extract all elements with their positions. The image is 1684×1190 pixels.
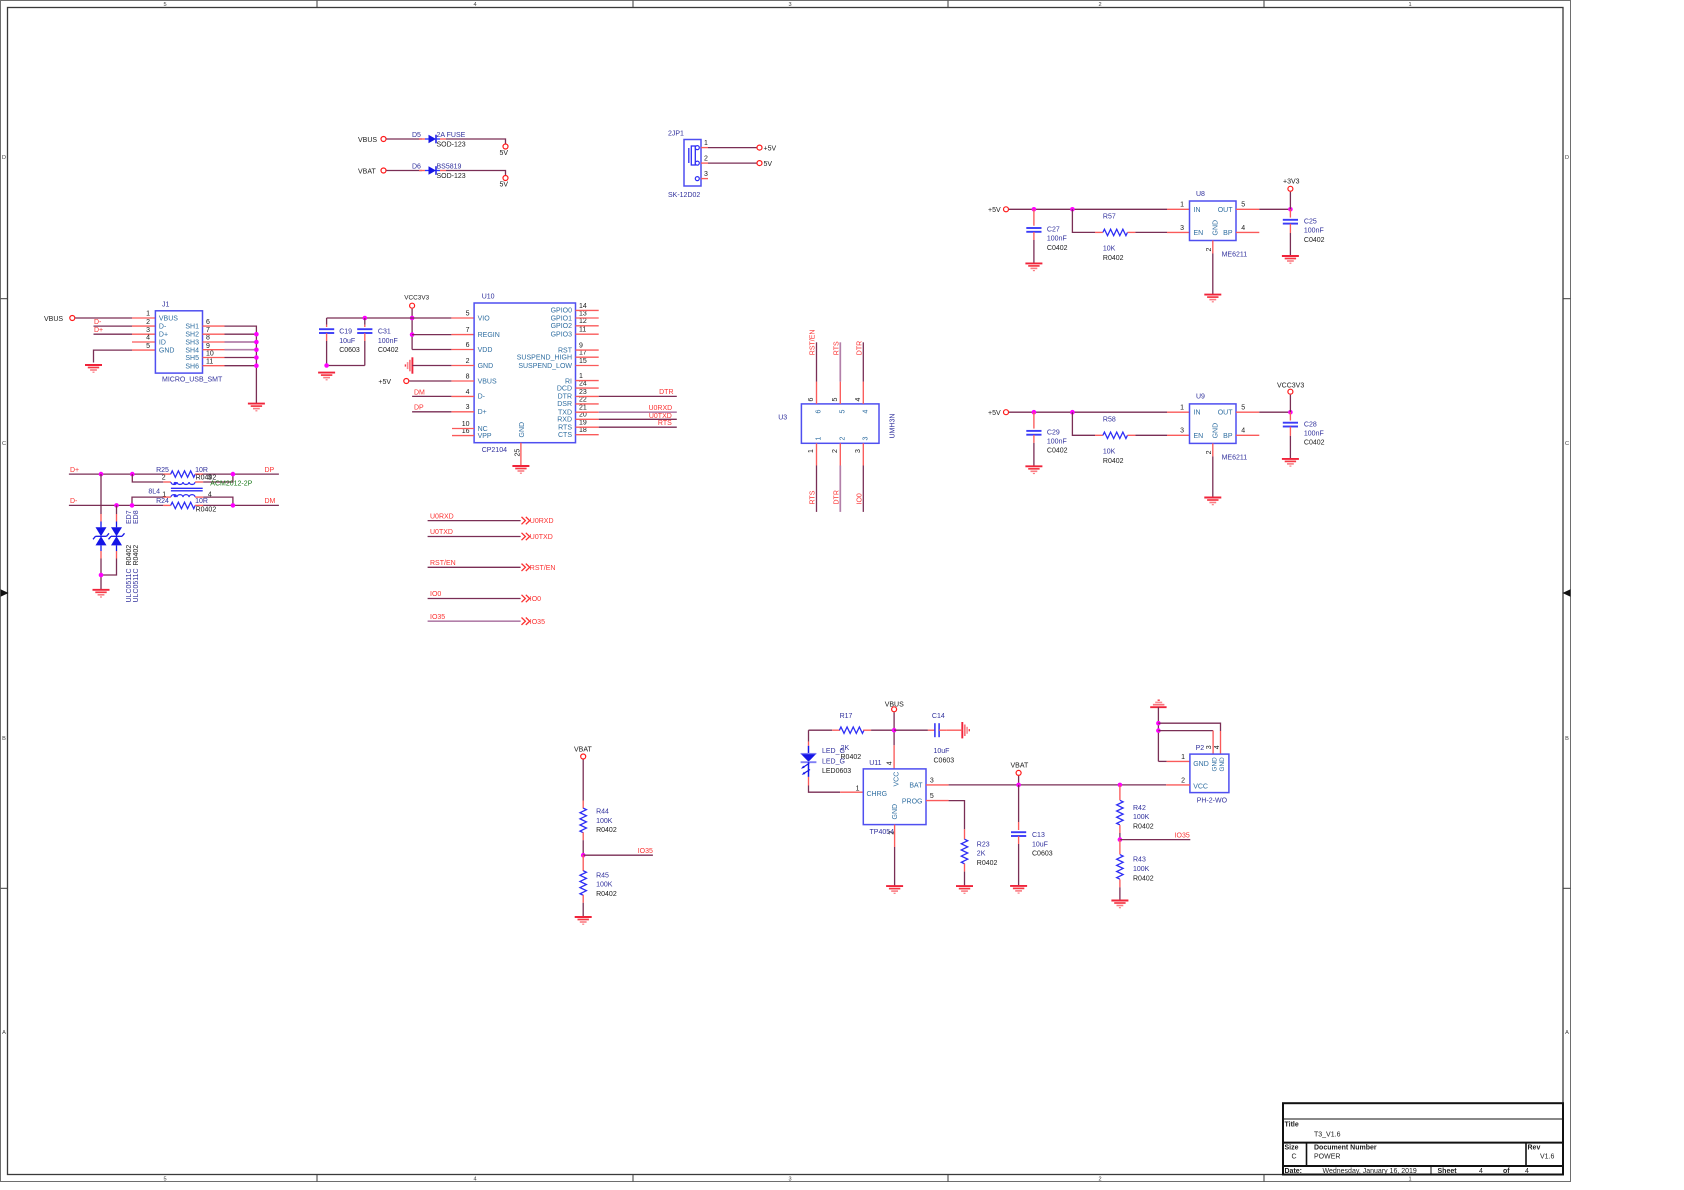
svg-text:EN: EN: [1194, 230, 1204, 237]
svg-text:D-: D-: [94, 319, 102, 326]
svg-text:4: 4: [862, 410, 869, 414]
svg-text:2: 2: [832, 449, 839, 453]
svg-text:RTS: RTS: [810, 490, 817, 504]
svg-text:12: 12: [579, 318, 587, 325]
svg-text:U0TXD: U0TXD: [649, 413, 672, 420]
svg-text:LED_G: LED_G: [822, 759, 845, 766]
svg-text:21: 21: [579, 405, 587, 412]
svg-text:VCC3V3: VCC3V3: [404, 295, 429, 302]
svg-text:T3_V1.6: T3_V1.6: [1314, 1131, 1341, 1138]
svg-text:7: 7: [466, 327, 470, 334]
svg-text:RST: RST: [558, 347, 573, 354]
svg-text:4: 4: [1241, 428, 1245, 435]
svg-text:2: 2: [146, 319, 150, 326]
svg-text:ID: ID: [159, 339, 166, 346]
svg-text:VBUS: VBUS: [159, 315, 178, 322]
svg-text:1: 1: [1408, 1177, 1411, 1183]
svg-text:3: 3: [788, 2, 791, 8]
svg-text:15: 15: [579, 358, 587, 365]
svg-text:J1: J1: [162, 301, 170, 308]
svg-text:VBUS: VBUS: [44, 316, 63, 323]
svg-text:2: 2: [1098, 2, 1101, 8]
svg-text:3: 3: [1180, 225, 1184, 232]
svg-text:IO0: IO0: [856, 493, 863, 504]
svg-text:4: 4: [146, 335, 150, 342]
svg-text:Date:: Date:: [1285, 1168, 1303, 1175]
svg-text:5: 5: [839, 410, 846, 414]
svg-text:+3V3: +3V3: [1283, 178, 1300, 185]
svg-text:DTR: DTR: [833, 490, 840, 504]
svg-text:D6: D6: [412, 164, 421, 171]
svg-text:10R: 10R: [195, 498, 208, 505]
svg-text:C25: C25: [1304, 218, 1317, 225]
svg-text:U0TXD: U0TXD: [530, 534, 553, 541]
svg-text:IO35: IO35: [530, 619, 545, 626]
svg-text:100nF: 100nF: [1304, 431, 1324, 438]
svg-text:4: 4: [1479, 1168, 1483, 1175]
svg-text:4: 4: [1214, 745, 1221, 749]
svg-text:R42: R42: [1133, 805, 1146, 812]
svg-text:5: 5: [1241, 405, 1245, 412]
svg-text:R0402: R0402: [596, 891, 617, 898]
svg-text:2: 2: [466, 358, 470, 365]
svg-text:5: 5: [832, 398, 839, 402]
svg-text:2A FUSE: 2A FUSE: [437, 132, 466, 139]
svg-text:U9: U9: [1196, 394, 1205, 401]
svg-text:C0402: C0402: [1304, 237, 1325, 244]
svg-text:10K: 10K: [1103, 448, 1116, 455]
svg-text:RI: RI: [565, 378, 572, 385]
svg-text:100nF: 100nF: [1047, 439, 1067, 446]
svg-text:LED0603: LED0603: [822, 768, 851, 775]
svg-text:2: 2: [1181, 777, 1185, 784]
svg-text:ULC0511C: ULC0511C: [126, 568, 133, 602]
svg-text:2K: 2K: [977, 851, 986, 858]
svg-text:RTS: RTS: [558, 425, 572, 432]
svg-text:SUSPEND_LOW: SUSPEND_LOW: [518, 363, 572, 370]
svg-text:RST/EN: RST/EN: [530, 565, 556, 572]
svg-text:D-: D-: [70, 498, 78, 505]
svg-text:DTR: DTR: [856, 341, 863, 355]
svg-text:C: C: [1565, 441, 1569, 447]
svg-text:Sheet: Sheet: [1438, 1168, 1458, 1175]
svg-text:C27: C27: [1047, 227, 1060, 234]
svg-text:P2: P2: [1196, 745, 1205, 752]
svg-text:VCC: VCC: [1193, 783, 1208, 790]
svg-text:R0402: R0402: [596, 827, 617, 834]
svg-text:+5V: +5V: [988, 207, 1001, 214]
svg-text:ME6211: ME6211: [1222, 251, 1248, 258]
svg-text:C0603: C0603: [934, 757, 955, 764]
svg-text:R0402: R0402: [196, 507, 217, 514]
svg-text:3: 3: [855, 449, 862, 453]
svg-text:GPIO0: GPIO0: [551, 308, 573, 315]
svg-text:100nF: 100nF: [1304, 228, 1324, 235]
svg-text:C0402: C0402: [1047, 245, 1068, 252]
svg-text:R44: R44: [596, 809, 609, 816]
svg-text:RTS: RTS: [833, 341, 840, 355]
svg-text:13: 13: [579, 310, 587, 317]
svg-text:5: 5: [1241, 202, 1245, 209]
svg-text:5V: 5V: [500, 150, 509, 157]
svg-text:SH2: SH2: [185, 332, 199, 339]
svg-text:2: 2: [1206, 450, 1213, 454]
svg-text:SK-12D02: SK-12D02: [668, 192, 700, 199]
svg-text:2JP1: 2JP1: [668, 131, 684, 138]
svg-text:1: 1: [1408, 2, 1411, 8]
svg-text:3: 3: [466, 404, 470, 411]
svg-text:VDD: VDD: [478, 347, 493, 354]
svg-text:19: 19: [579, 420, 587, 427]
svg-text:1: 1: [146, 311, 150, 318]
svg-text:SOD-123: SOD-123: [437, 141, 466, 148]
svg-text:IO0: IO0: [430, 591, 441, 598]
svg-text:2: 2: [162, 474, 166, 481]
svg-text:8L4: 8L4: [148, 489, 160, 496]
svg-text:POWER: POWER: [1314, 1154, 1340, 1161]
svg-text:9: 9: [206, 343, 210, 350]
svg-text:2: 2: [839, 437, 846, 441]
svg-text:U3: U3: [778, 415, 787, 422]
svg-text:BP: BP: [1223, 433, 1233, 440]
svg-text:R43: R43: [1133, 857, 1146, 864]
svg-text:Wednesday, January 16, 2019: Wednesday, January 16, 2019: [1323, 1168, 1417, 1175]
svg-text:D5: D5: [412, 132, 421, 139]
svg-text:D: D: [1565, 155, 1569, 161]
svg-text:R0402: R0402: [133, 545, 140, 566]
svg-text:V1.6: V1.6: [1540, 1154, 1555, 1161]
svg-text:UMH3N: UMH3N: [890, 414, 897, 439]
svg-text:GPIO2: GPIO2: [551, 323, 573, 330]
svg-text:IN: IN: [1194, 207, 1201, 214]
svg-text:C19: C19: [339, 329, 352, 336]
svg-text:R0402: R0402: [1133, 875, 1154, 882]
svg-text:5V: 5V: [500, 182, 509, 189]
svg-text:8: 8: [466, 373, 470, 380]
svg-text:ME6211: ME6211: [1222, 454, 1248, 461]
svg-text:GND: GND: [519, 422, 526, 438]
svg-text:6: 6: [808, 398, 815, 402]
svg-text:10uF: 10uF: [934, 748, 950, 755]
svg-text:D+: D+: [159, 332, 168, 339]
svg-text:GND: GND: [1193, 761, 1209, 768]
svg-text:D: D: [2, 155, 6, 161]
svg-text:U11: U11: [869, 760, 881, 767]
svg-text:D+: D+: [70, 467, 79, 474]
svg-text:3: 3: [1180, 428, 1184, 435]
svg-text:3: 3: [788, 1177, 791, 1183]
svg-text:10R: 10R: [195, 467, 208, 474]
svg-text:5: 5: [146, 343, 150, 350]
svg-text:R25: R25: [156, 467, 169, 474]
svg-text:GPIO3: GPIO3: [551, 332, 573, 339]
svg-text:4: 4: [466, 389, 470, 396]
svg-text:6: 6: [206, 319, 210, 326]
svg-text:D-: D-: [159, 324, 167, 331]
svg-text:C13: C13: [1032, 832, 1045, 839]
svg-text:4: 4: [1241, 225, 1245, 232]
svg-text:U0RXD: U0RXD: [530, 518, 554, 525]
svg-text:100K: 100K: [596, 882, 613, 889]
svg-text:IO35: IO35: [1175, 832, 1190, 839]
svg-text:GND: GND: [1213, 423, 1220, 439]
svg-text:SUSPEND_HIGH: SUSPEND_HIGH: [517, 355, 572, 362]
svg-text:DM: DM: [265, 498, 276, 505]
svg-text:5: 5: [930, 793, 934, 800]
svg-text:U0RXD: U0RXD: [430, 513, 454, 520]
svg-text:C31: C31: [378, 329, 391, 336]
svg-text:5: 5: [466, 310, 470, 317]
svg-text:22: 22: [579, 396, 587, 403]
svg-text:VCC3V3: VCC3V3: [1277, 382, 1304, 389]
svg-text:1: 1: [808, 449, 815, 453]
svg-text:10uF: 10uF: [339, 338, 355, 345]
svg-text:C0402: C0402: [1047, 448, 1068, 455]
svg-text:A: A: [1565, 1030, 1569, 1036]
svg-text:+5V: +5V: [764, 145, 777, 152]
svg-text:VBAT: VBAT: [358, 168, 376, 175]
svg-text:PROG: PROG: [902, 799, 923, 806]
svg-text:C0603: C0603: [339, 347, 360, 354]
svg-text:ULC0511C: ULC0511C: [133, 568, 140, 602]
svg-text:GPIO1: GPIO1: [551, 315, 573, 322]
svg-text:100nF: 100nF: [1047, 236, 1067, 243]
svg-text:U0RXD: U0RXD: [648, 405, 672, 412]
svg-text:100K: 100K: [1133, 814, 1150, 821]
svg-text:DM: DM: [414, 389, 425, 396]
svg-text:R45: R45: [596, 872, 609, 879]
svg-text:GND: GND: [1212, 757, 1219, 772]
svg-text:24: 24: [579, 381, 587, 388]
svg-text:2: 2: [704, 156, 708, 163]
svg-text:GND: GND: [892, 804, 899, 820]
svg-text:LED_G: LED_G: [822, 748, 845, 755]
svg-text:B: B: [2, 736, 6, 742]
svg-text:1: 1: [704, 140, 708, 147]
svg-text:MICRO_USB_SMT: MICRO_USB_SMT: [162, 377, 223, 384]
svg-text:DTR: DTR: [558, 394, 572, 401]
svg-text:25: 25: [515, 449, 522, 457]
svg-text:4: 4: [1525, 1168, 1529, 1175]
svg-text:18: 18: [579, 427, 587, 434]
svg-text:ACM2012-2P: ACM2012-2P: [210, 481, 252, 488]
svg-text:+5V: +5V: [378, 379, 391, 386]
svg-text:of: of: [1503, 1168, 1510, 1175]
svg-text:5V: 5V: [764, 161, 773, 168]
svg-text:100K: 100K: [596, 818, 613, 825]
svg-text:RTS: RTS: [658, 420, 672, 427]
svg-text:1: 1: [1180, 405, 1184, 412]
svg-text:IO35: IO35: [430, 614, 445, 621]
svg-text:10: 10: [462, 421, 470, 428]
svg-text:3: 3: [704, 171, 708, 178]
svg-text:PH-2-WO: PH-2-WO: [1197, 797, 1228, 804]
svg-text:U0TXD: U0TXD: [430, 529, 453, 536]
svg-text:4: 4: [855, 398, 862, 402]
svg-text:R0402: R0402: [126, 545, 133, 566]
svg-text:IO35: IO35: [638, 848, 653, 855]
svg-text:REGIN: REGIN: [478, 332, 500, 339]
svg-text:R24: R24: [156, 498, 169, 505]
svg-text:BP: BP: [1223, 230, 1233, 237]
svg-text:1: 1: [856, 786, 860, 793]
svg-text:R57: R57: [1103, 214, 1116, 221]
svg-text:EN: EN: [1194, 433, 1204, 440]
svg-text:3: 3: [862, 437, 869, 441]
svg-text:10K: 10K: [1103, 246, 1116, 253]
svg-text:ED7: ED7: [126, 510, 133, 524]
svg-text:3: 3: [1206, 745, 1213, 749]
svg-text:R23: R23: [977, 841, 990, 848]
svg-text:Document Number: Document Number: [1314, 1144, 1377, 1151]
svg-text:+5V: +5V: [988, 410, 1001, 417]
svg-text:2: 2: [1206, 248, 1213, 252]
svg-text:CTS: CTS: [558, 432, 572, 439]
svg-text:D+: D+: [94, 327, 103, 334]
svg-text:B: B: [1565, 736, 1569, 742]
svg-text:U8: U8: [1196, 191, 1205, 198]
svg-text:DSR: DSR: [557, 401, 572, 408]
svg-text:DTR: DTR: [659, 389, 673, 396]
svg-text:RST/EN: RST/EN: [430, 560, 456, 567]
svg-text:2: 2: [1098, 1177, 1101, 1183]
svg-text:DP: DP: [414, 405, 424, 412]
svg-text:6: 6: [816, 410, 823, 414]
svg-text:8: 8: [206, 335, 210, 342]
svg-text:11: 11: [206, 359, 213, 366]
svg-text:C0402: C0402: [378, 347, 399, 354]
svg-text:3: 3: [930, 777, 934, 784]
svg-text:6: 6: [466, 342, 470, 349]
svg-text:D-: D-: [478, 394, 486, 401]
svg-text:14: 14: [579, 303, 587, 310]
svg-text:OUT: OUT: [1218, 207, 1234, 214]
svg-text:100nF: 100nF: [378, 338, 398, 345]
svg-text:GND: GND: [159, 348, 175, 355]
svg-text:GND: GND: [1213, 220, 1220, 236]
svg-text:DCD: DCD: [557, 385, 572, 392]
svg-text:SH3: SH3: [185, 339, 199, 346]
svg-text:A: A: [2, 1030, 6, 1036]
svg-text:R58: R58: [1103, 417, 1116, 424]
svg-text:1: 1: [816, 437, 823, 441]
svg-text:5: 5: [163, 1177, 166, 1183]
svg-text:VBUS: VBUS: [358, 137, 377, 144]
svg-text:R0402: R0402: [1103, 458, 1124, 465]
svg-text:4: 4: [473, 2, 476, 8]
svg-text:9: 9: [579, 343, 583, 350]
svg-text:10: 10: [206, 351, 214, 358]
svg-text:Rev: Rev: [1528, 1144, 1541, 1151]
svg-text:3: 3: [146, 327, 150, 334]
svg-text:VBUS: VBUS: [478, 378, 497, 385]
svg-text:SOD-123: SOD-123: [437, 173, 466, 180]
svg-text:C14: C14: [932, 713, 945, 720]
svg-text:GND: GND: [1219, 757, 1226, 772]
svg-text:4: 4: [887, 761, 894, 765]
svg-text:R0402: R0402: [1103, 255, 1124, 262]
svg-text:SH6: SH6: [185, 363, 199, 370]
svg-text:CHRG: CHRG: [867, 791, 888, 798]
svg-text:BS5819: BS5819: [437, 164, 462, 171]
svg-text:GND: GND: [478, 363, 494, 370]
svg-text:TXD: TXD: [558, 410, 572, 417]
svg-text:RXD: RXD: [557, 417, 572, 424]
svg-text:SH4: SH4: [185, 348, 199, 355]
svg-text:SH5: SH5: [185, 355, 199, 362]
svg-text:R0402: R0402: [1133, 823, 1154, 830]
svg-text:VBAT: VBAT: [574, 746, 592, 753]
svg-text:C: C: [1292, 1154, 1297, 1161]
svg-text:IN: IN: [1194, 410, 1201, 417]
svg-text:U10: U10: [482, 294, 495, 301]
svg-text:VBAT: VBAT: [1011, 763, 1029, 770]
svg-text:C28: C28: [1304, 421, 1317, 428]
svg-text:IO0: IO0: [530, 596, 541, 603]
svg-text:C: C: [2, 441, 6, 447]
svg-text:C0402: C0402: [1304, 440, 1325, 447]
svg-text:RST/EN: RST/EN: [810, 330, 817, 356]
svg-text:VPP: VPP: [478, 433, 492, 440]
svg-text:7: 7: [206, 327, 210, 334]
svg-text:ED8: ED8: [133, 510, 140, 524]
svg-text:1: 1: [579, 373, 583, 380]
svg-text:SH1: SH1: [185, 324, 199, 331]
svg-text:D+: D+: [478, 409, 487, 416]
svg-text:23: 23: [579, 389, 587, 396]
svg-text:11: 11: [579, 327, 586, 334]
svg-text:R0402: R0402: [977, 860, 998, 867]
svg-text:CP2104: CP2104: [482, 447, 507, 454]
svg-text:1: 1: [1181, 754, 1185, 761]
svg-text:NC: NC: [478, 426, 488, 433]
svg-text:100K: 100K: [1133, 866, 1150, 873]
svg-text:Title: Title: [1285, 1122, 1299, 1129]
svg-text:10uF: 10uF: [1032, 841, 1048, 848]
svg-text:C29: C29: [1047, 429, 1060, 436]
svg-text:C0603: C0603: [1032, 851, 1053, 858]
svg-text:4: 4: [473, 1177, 476, 1183]
svg-text:OUT: OUT: [1218, 410, 1234, 417]
svg-text:R17: R17: [840, 713, 853, 720]
svg-text:BAT: BAT: [909, 782, 923, 789]
svg-text:VIO: VIO: [478, 315, 491, 322]
svg-text:1: 1: [1180, 202, 1184, 209]
svg-text:Size: Size: [1285, 1144, 1299, 1151]
svg-text:DP: DP: [265, 467, 275, 474]
svg-text:VCC: VCC: [893, 772, 900, 787]
svg-text:5: 5: [163, 2, 166, 8]
